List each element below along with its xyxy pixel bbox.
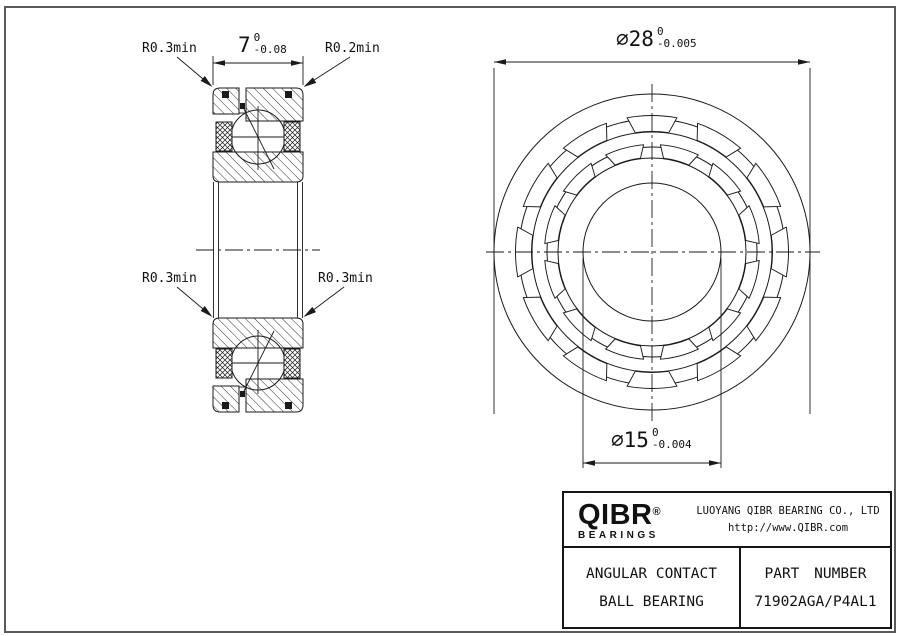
width-tol-lower: -0.08 (254, 44, 287, 56)
width-value: 7 (238, 34, 251, 56)
outer-tol-lower: -0.005 (657, 38, 697, 50)
cage-pocket (563, 123, 607, 157)
drawing-sheet: R0.3min R0.2min R0.3min R0.3min 7 0 -0.0… (0, 0, 900, 636)
title-block: QIBR® BEARINGS LUOYANG QIBR BEARING CO.,… (562, 491, 892, 629)
cage-pocket (697, 123, 741, 157)
width-dimension-text: 7 0 -0.08 (238, 34, 287, 56)
bore-tol-upper: 0 (652, 427, 659, 439)
cage-pocket (606, 145, 644, 165)
product-type-line2: BALL BEARING (564, 594, 739, 610)
product-type-line1: ANGULAR CONTACT (564, 566, 739, 582)
cage-pocket (545, 206, 565, 244)
cage-pocket (697, 347, 741, 381)
title-block-header: QIBR® BEARINGS LUOYANG QIBR BEARING CO.,… (564, 493, 890, 548)
part-number-value: 71902AGA/P4AL1 (741, 594, 890, 610)
cage-pocket (747, 297, 781, 341)
company-website: http://www.QIBR.com (690, 520, 886, 537)
cage-top-right (284, 122, 300, 151)
outer-diameter-value: ⌀28 (616, 28, 654, 50)
cage-pocket (660, 339, 698, 359)
cage-pocket (563, 163, 595, 195)
part-number-cell: PART NUMBER 71902AGA/P4AL1 (741, 548, 890, 627)
cage-bottom-right (284, 349, 300, 378)
cage-pocket (523, 163, 557, 207)
product-type-cell: ANGULAR CONTACT BALL BEARING (564, 548, 741, 627)
logo-subtext: BEARINGS (578, 530, 690, 541)
registered-mark-icon: ® (653, 506, 662, 518)
company-info: LUOYANG QIBR BEARING CO., LTD http://www… (690, 503, 890, 537)
cage-pocket (563, 347, 607, 381)
cage-pocket (523, 297, 557, 341)
bore-diameter-text: ⌀15 0 -0.004 (611, 429, 692, 451)
radius-label-top-left: R0.3min (142, 41, 197, 56)
width-tol-upper: 0 (254, 32, 261, 44)
title-block-body: ANGULAR CONTACT BALL BEARING PART NUMBER… (564, 548, 890, 627)
width-dimension (213, 56, 303, 85)
seal-notch-bottom-left (222, 402, 229, 409)
radius-label-mid-right: R0.3min (318, 271, 373, 286)
company-name: LUOYANG QIBR BEARING CO., LTD (690, 503, 886, 520)
cage-pocket (739, 260, 759, 298)
cage-top-left (216, 122, 232, 151)
front-view (486, 59, 820, 468)
bore-diameter-value: ⌀15 (611, 429, 649, 451)
cage-pocket (545, 260, 565, 298)
part-number-label: PART NUMBER (741, 566, 890, 582)
cage-pocket (563, 309, 595, 341)
company-logo: QIBR® BEARINGS (564, 499, 690, 541)
outer-tol-upper: 0 (657, 26, 664, 38)
cage-bottom-left (216, 349, 232, 378)
cage-pocket (709, 163, 741, 195)
seal-notch-top-left (222, 91, 229, 98)
logo-wordmark: QIBR® (578, 499, 690, 529)
cage-pocket (747, 163, 781, 207)
seal-notch-top-right (285, 91, 292, 98)
bore-tol-lower: -0.004 (652, 439, 692, 451)
cage-pocket (606, 339, 644, 359)
cage-pocket (739, 206, 759, 244)
cage-pocket (660, 145, 698, 165)
radius-label-top-right: R0.2min (325, 41, 380, 56)
seal-notch-bottom-right (285, 402, 292, 409)
cage-pocket (709, 309, 741, 341)
outer-diameter-text: ⌀28 0 -0.005 (616, 28, 697, 50)
radius-label-mid-left: R0.3min (142, 271, 197, 286)
section-view (177, 56, 350, 412)
